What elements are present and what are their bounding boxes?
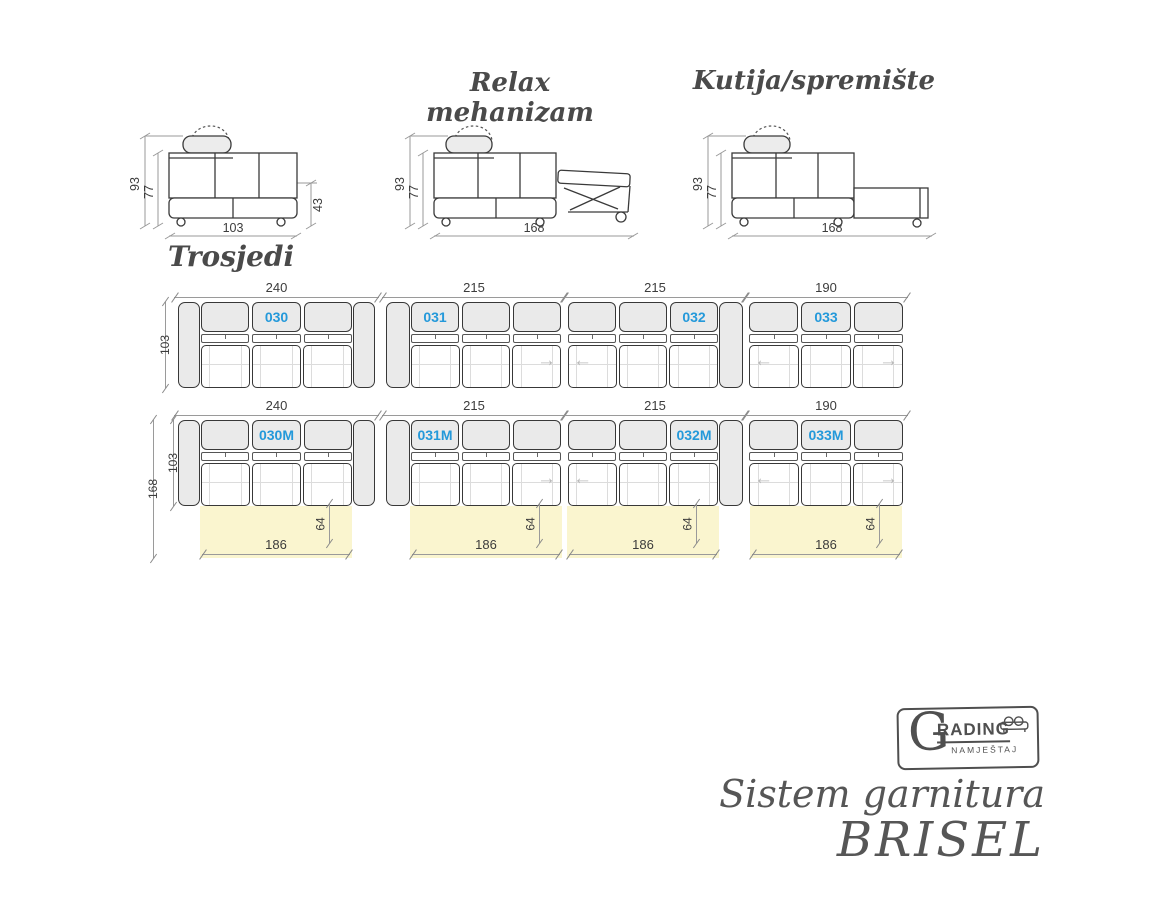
back-cushion xyxy=(513,420,561,450)
seat: ← xyxy=(568,463,617,506)
armrest-right xyxy=(353,302,375,388)
extend-right-arrow-icon: → xyxy=(879,469,898,488)
model-code: 031 xyxy=(423,309,446,325)
model-code: 033M xyxy=(808,427,843,443)
sofa-topview: 033 ← → xyxy=(748,302,904,388)
seat xyxy=(252,345,301,388)
module-031: 215 031 → xyxy=(386,280,562,388)
module-033M: 190 033M ← → 64 xyxy=(748,398,904,506)
sofa-icon xyxy=(998,713,1032,741)
back-cushion xyxy=(462,302,510,332)
foot xyxy=(834,218,842,226)
extend-left-arrow-icon: ← xyxy=(754,351,773,370)
back-cushion xyxy=(619,302,667,332)
seat: → xyxy=(512,463,561,506)
model-code: 030 xyxy=(265,309,288,325)
back-cushion: 030M xyxy=(252,420,300,450)
sofa-topview: 030M xyxy=(178,420,375,506)
model-code: 032 xyxy=(682,309,705,325)
width-dimension: 215 xyxy=(386,398,562,416)
back-cushion xyxy=(619,420,667,450)
seat xyxy=(669,463,718,506)
sofa-topview: 033M ← → xyxy=(748,420,904,506)
foot xyxy=(277,218,285,226)
logo-subtitle: NAMJEŠTAJ xyxy=(951,744,1018,755)
dim-inner-height: 77 xyxy=(407,185,421,199)
footrest-platform xyxy=(558,170,631,187)
back-cushion xyxy=(854,420,903,450)
armrest-left xyxy=(178,420,200,506)
back-cushion xyxy=(749,302,798,332)
bed-extension: 64 186 xyxy=(410,506,562,558)
section-title: Trosjedi xyxy=(168,240,294,273)
back-cushion xyxy=(513,302,561,332)
sofa-topview: 031M → xyxy=(386,420,562,506)
extend-right-arrow-icon: → xyxy=(537,469,556,488)
seat xyxy=(462,463,511,506)
model-code: 033 xyxy=(814,309,837,325)
back-cushion: 031 xyxy=(411,302,459,332)
model-code: 030M xyxy=(259,427,294,443)
depth-dimension: 103 xyxy=(158,302,174,388)
module-030: 240 030 xyxy=(178,280,375,388)
bed-width-dimension: 186 xyxy=(202,539,350,555)
seat xyxy=(411,345,460,388)
armrest-left xyxy=(178,302,200,388)
back-cushion xyxy=(462,420,510,450)
module-032M: 215 032M ← 64 xyxy=(567,398,743,506)
series-name: BRISEL xyxy=(600,812,1045,868)
back-cushion xyxy=(201,302,249,332)
extend-right-arrow-icon: → xyxy=(879,351,898,370)
dim-seat-height: 43 xyxy=(311,198,325,212)
module-032: 215 032 ← xyxy=(567,280,743,388)
storage-box xyxy=(854,188,928,218)
foot xyxy=(442,218,450,226)
width-dimension: 190 xyxy=(748,280,904,298)
armrest-right xyxy=(719,302,743,388)
back-cushion xyxy=(568,302,616,332)
width-dimension: 215 xyxy=(567,280,743,298)
module-031M: 215 031M → 64 xyxy=(386,398,562,506)
seat: ← xyxy=(749,463,799,506)
seat xyxy=(801,345,851,388)
back-cushion: 032M xyxy=(670,420,718,450)
model-code: 032M xyxy=(676,427,711,443)
seat xyxy=(801,463,851,506)
back-cushion xyxy=(568,420,616,450)
extend-left-arrow-icon: ← xyxy=(573,351,592,370)
extend-left-arrow-icon: ← xyxy=(754,469,773,488)
seat: ← xyxy=(749,345,799,388)
wheel xyxy=(913,219,921,227)
seat xyxy=(252,463,301,506)
sofa-topview: 030 xyxy=(178,302,375,388)
armrest-left xyxy=(386,302,410,388)
back-cushion: 033M xyxy=(801,420,850,450)
sofa-base xyxy=(434,198,556,218)
seat xyxy=(303,463,352,506)
seat xyxy=(619,463,668,506)
back-cushion xyxy=(201,420,249,450)
seat xyxy=(411,463,460,506)
headrest xyxy=(744,136,790,153)
bed-extension: 64 186 xyxy=(200,506,352,558)
seat xyxy=(201,345,250,388)
back-cushion: 032 xyxy=(670,302,718,332)
back-cushion: 033 xyxy=(801,302,850,332)
brand-logo: G RADING NAMJEŠTAJ xyxy=(896,706,1039,770)
sideview-storage: 93 77 168 xyxy=(688,96,943,244)
foot xyxy=(740,218,748,226)
seat xyxy=(619,345,668,388)
headrest xyxy=(446,136,492,153)
dim-height: 93 xyxy=(128,177,142,191)
seat: → xyxy=(512,345,561,388)
wheel xyxy=(616,212,626,222)
series-title: Sistem garnitura xyxy=(600,772,1045,816)
module-030M: 240 030M 64 xyxy=(178,398,375,506)
back-cushion xyxy=(304,420,352,450)
total-depth-dimension: 168 xyxy=(146,420,162,558)
width-dimension: 240 xyxy=(178,398,375,416)
seat xyxy=(201,463,250,506)
foot xyxy=(536,218,544,226)
model-code: 031M xyxy=(417,427,452,443)
sofa-topview: 031 → xyxy=(386,302,562,388)
sofa-body xyxy=(732,153,854,198)
extend-right-arrow-icon: → xyxy=(537,351,556,370)
width-dimension: 190 xyxy=(748,398,904,416)
module-033: 190 033 ← → xyxy=(748,280,904,388)
extend-left-arrow-icon: ← xyxy=(573,469,592,488)
back-cushion xyxy=(854,302,903,332)
sofa-body xyxy=(434,153,556,198)
seat: → xyxy=(853,345,903,388)
seat xyxy=(462,345,511,388)
seat xyxy=(669,345,718,388)
storage-title: Kutija/spremište xyxy=(690,66,938,96)
dim-inner-height: 77 xyxy=(142,185,156,199)
width-dimension: 240 xyxy=(178,280,375,298)
width-dimension: 215 xyxy=(386,280,562,298)
headrest xyxy=(183,136,231,153)
armrest-right xyxy=(353,420,375,506)
seat xyxy=(303,345,352,388)
sofa-base xyxy=(732,198,854,218)
seat: → xyxy=(853,463,903,506)
seat: ← xyxy=(568,345,617,388)
bed-extension: 64 186 xyxy=(750,506,902,558)
bed-extension: 64 186 xyxy=(567,506,719,558)
sideview-relax: 93 77 168 xyxy=(390,96,645,244)
back-cushion: 031M xyxy=(411,420,459,450)
catalog-page: 93 77 43 103 xyxy=(0,0,1156,900)
bed-width-dimension: 186 xyxy=(412,539,560,555)
back-cushion xyxy=(304,302,352,332)
back-cushion xyxy=(749,420,798,450)
dim-height: 93 xyxy=(393,177,407,191)
sideview-basic: 93 77 43 103 xyxy=(125,96,330,244)
sofa-topview: 032M ← xyxy=(567,420,743,506)
sofa-body xyxy=(169,153,297,198)
dim-inner-height: 77 xyxy=(705,185,719,199)
back-cushion: 030 xyxy=(252,302,300,332)
bed-width-dimension: 186 xyxy=(752,539,900,555)
dim-height: 93 xyxy=(691,177,705,191)
dim-width: 103 xyxy=(223,221,244,235)
width-dimension: 215 xyxy=(567,398,743,416)
bed-width-dimension: 186 xyxy=(569,539,717,555)
armrest-right xyxy=(719,420,743,506)
foot xyxy=(177,218,185,226)
sofa-topview: 032 ← xyxy=(567,302,743,388)
armrest-left xyxy=(386,420,410,506)
